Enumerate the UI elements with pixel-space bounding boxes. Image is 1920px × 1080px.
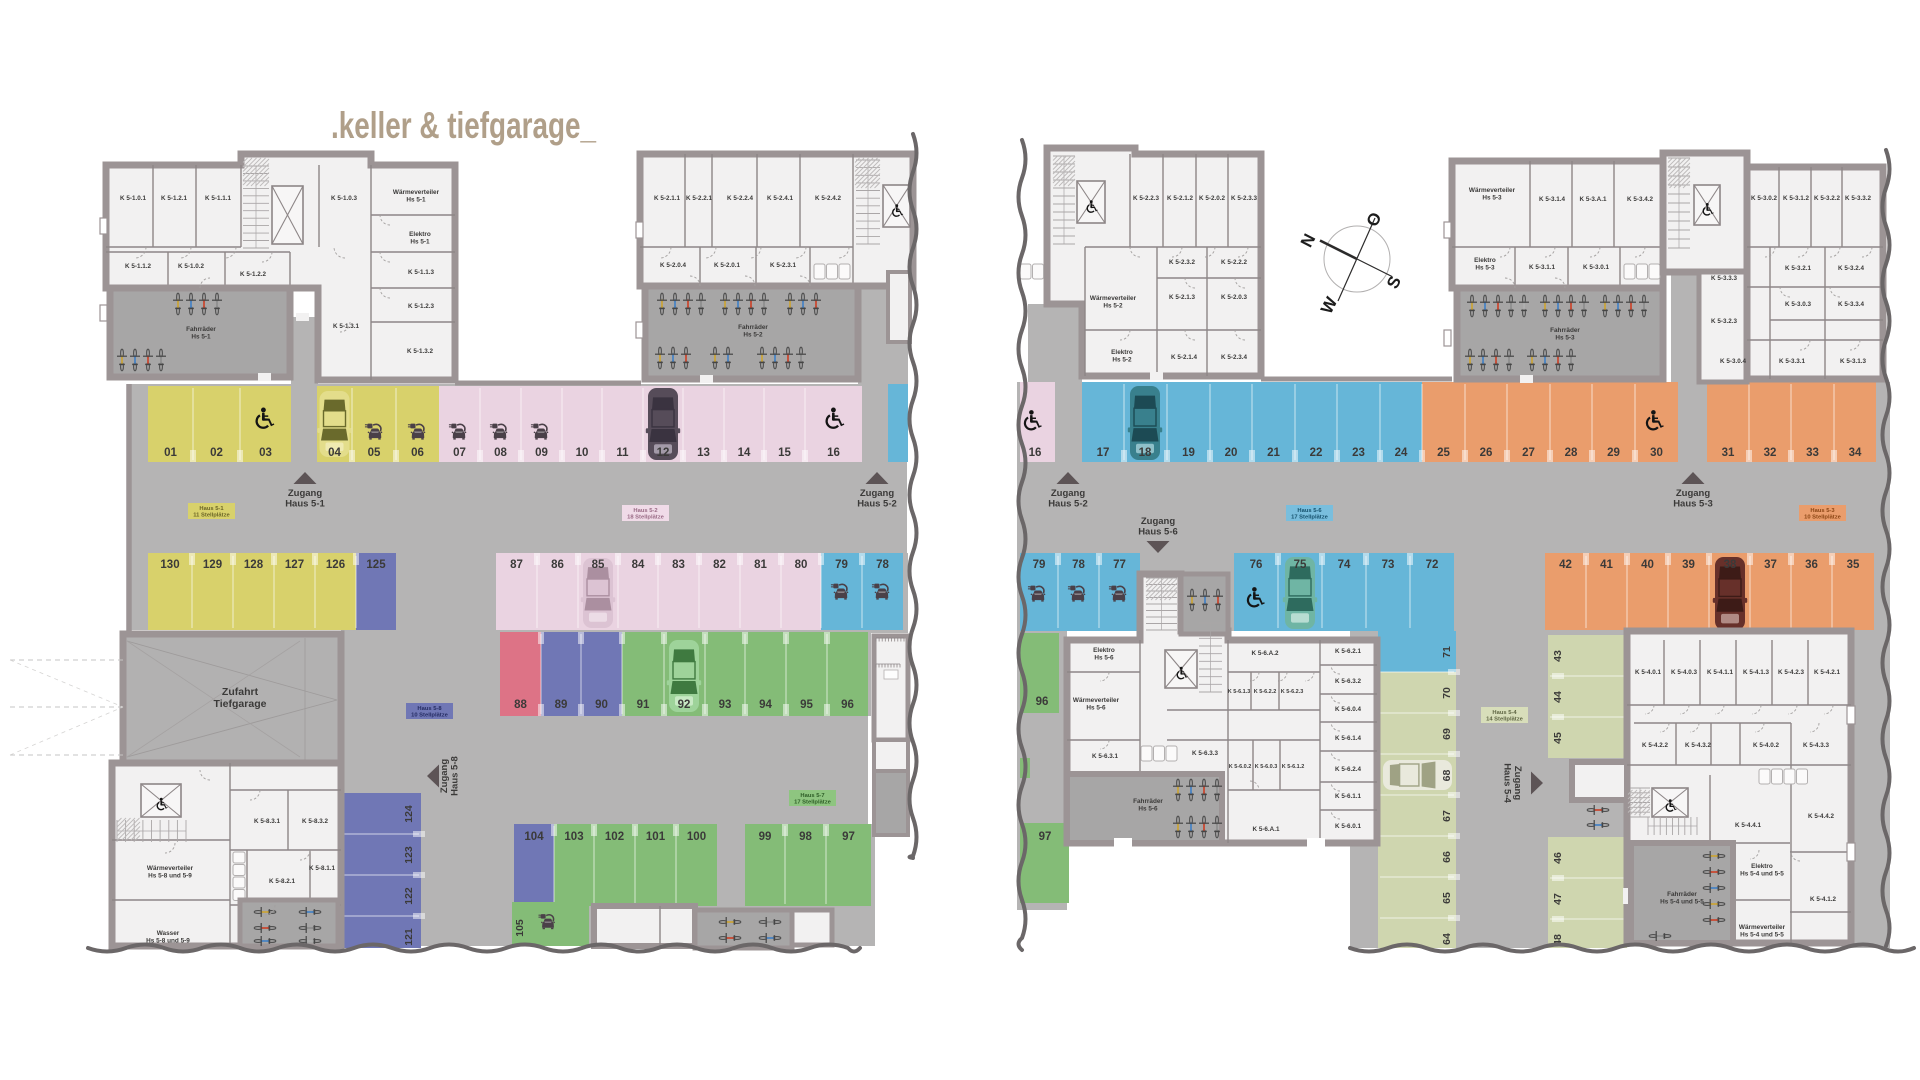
svg-text:11: 11 (616, 447, 629, 459)
svg-text:K 5-2.0.1: K 5-2.0.1 (714, 262, 740, 269)
svg-text:K 5-2.3.3: K 5-2.3.3 (1231, 195, 1257, 202)
svg-text:96: 96 (1036, 696, 1049, 708)
svg-text:ElektroHs 5-6: ElektroHs 5-6 (1093, 647, 1115, 662)
svg-text:K 5-8.2.1: K 5-8.2.1 (269, 878, 295, 885)
svg-text:104: 104 (524, 831, 544, 843)
svg-text:K 5-3.3.3: K 5-3.3.3 (1711, 275, 1737, 282)
svg-text:K 5-3.1.4: K 5-3.1.4 (1539, 196, 1565, 203)
svg-text:WärmeverteilerHs 5-4 und 5-5: WärmeverteilerHs 5-4 und 5-5 (1739, 924, 1786, 939)
svg-text:84: 84 (632, 559, 645, 571)
svg-text:92: 92 (678, 699, 691, 711)
svg-text:K 5-1.1.2: K 5-1.1.2 (125, 263, 151, 270)
svg-text:K 5-3.A.1: K 5-3.A.1 (1580, 196, 1607, 203)
svg-text:K 5-6.0.3: K 5-6.0.3 (1255, 764, 1278, 770)
svg-text:103: 103 (564, 831, 583, 843)
svg-text:K 5-6.0.2: K 5-6.0.2 (1229, 764, 1252, 770)
svg-text:90: 90 (595, 699, 608, 711)
svg-text:21: 21 (1267, 447, 1280, 459)
svg-text:ZugangHaus 5-1: ZugangHaus 5-1 (285, 488, 325, 510)
svg-text:16: 16 (1029, 447, 1042, 459)
svg-text:12: 12 (657, 447, 670, 459)
svg-text:75: 75 (1294, 559, 1307, 571)
svg-text:K 5-1.0.2: K 5-1.0.2 (178, 263, 204, 270)
svg-text:K 5-3.0.2: K 5-3.0.2 (1751, 195, 1777, 202)
svg-text:K 5-4.2.3: K 5-4.2.3 (1778, 669, 1804, 676)
svg-text:34: 34 (1849, 447, 1862, 459)
svg-text:67: 67 (1441, 810, 1453, 822)
svg-text:88: 88 (514, 699, 527, 711)
svg-text:K 5-3.2.1: K 5-3.2.1 (1785, 265, 1811, 272)
svg-text:K 5-3.2.2: K 5-3.2.2 (1814, 195, 1840, 202)
svg-text:K 5-2.3.2: K 5-2.3.2 (1169, 259, 1195, 266)
svg-text:K 5-3.0.4: K 5-3.0.4 (1720, 358, 1746, 365)
svg-text:83: 83 (672, 559, 685, 571)
svg-text:K 5-8.1.1: K 5-8.1.1 (309, 865, 335, 872)
svg-text:K 5-4.1.2: K 5-4.1.2 (1810, 896, 1836, 903)
svg-text:K 5-2.1.1: K 5-2.1.1 (654, 195, 680, 202)
svg-text:09: 09 (535, 447, 548, 459)
svg-text:K 5-2.1.2: K 5-2.1.2 (1167, 195, 1193, 202)
svg-text:35: 35 (1847, 559, 1860, 571)
svg-text:K 5-2.3.4: K 5-2.3.4 (1221, 354, 1247, 361)
svg-text:99: 99 (759, 831, 772, 843)
svg-text:K 5-6.0.1: K 5-6.0.1 (1335, 823, 1361, 830)
svg-text:22: 22 (1310, 447, 1323, 459)
svg-text:73: 73 (1382, 559, 1395, 571)
svg-text:K 5-2.4.2: K 5-2.4.2 (815, 195, 841, 202)
svg-text:44: 44 (1552, 691, 1564, 703)
svg-text:10: 10 (576, 447, 589, 459)
svg-text:K 5-1.3.2: K 5-1.3.2 (407, 348, 433, 355)
svg-text:74: 74 (1338, 559, 1351, 571)
svg-text:27: 27 (1522, 447, 1535, 459)
svg-text:K 5-6.3.3: K 5-6.3.3 (1192, 750, 1218, 757)
svg-text:K 5-4.2.1: K 5-4.2.1 (1814, 669, 1840, 676)
svg-text:45: 45 (1552, 732, 1564, 744)
svg-text:101: 101 (646, 831, 666, 843)
svg-text:78: 78 (1072, 559, 1085, 571)
svg-text:38: 38 (1724, 559, 1737, 571)
svg-text:ElektroHs 5-1: ElektroHs 5-1 (409, 231, 431, 246)
svg-text:ElektroHs 5-2: ElektroHs 5-2 (1111, 349, 1133, 364)
svg-text:76: 76 (1250, 559, 1263, 571)
svg-text:37: 37 (1764, 559, 1777, 571)
svg-text:77: 77 (1113, 559, 1126, 571)
svg-text:K 5-6.2.1: K 5-6.2.1 (1335, 648, 1361, 655)
svg-text:47: 47 (1552, 893, 1564, 905)
svg-text:ZugangHaus 5-2: ZugangHaus 5-2 (857, 488, 897, 510)
svg-text:K 5-6.1.1: K 5-6.1.1 (1335, 793, 1361, 800)
svg-text:46: 46 (1552, 852, 1564, 864)
svg-text:81: 81 (754, 559, 767, 571)
svg-text:91: 91 (637, 699, 650, 711)
svg-text:K 5-4.3.2: K 5-4.3.2 (1685, 742, 1711, 749)
svg-text:29: 29 (1607, 447, 1620, 459)
svg-text:30: 30 (1650, 447, 1663, 459)
svg-text:K 5-3.1.3: K 5-3.1.3 (1840, 358, 1866, 365)
svg-text:28: 28 (1565, 447, 1578, 459)
svg-text:K 5-6.1.3: K 5-6.1.3 (1228, 689, 1251, 695)
svg-text:K 5-4.4.1: K 5-4.4.1 (1735, 822, 1761, 829)
svg-text:23: 23 (1352, 447, 1365, 459)
svg-text:79: 79 (835, 559, 848, 571)
svg-text:130: 130 (160, 559, 179, 571)
svg-text:36: 36 (1805, 559, 1818, 571)
svg-text:K 5-1.3.1: K 5-1.3.1 (333, 323, 359, 330)
svg-text:18: 18 (1139, 447, 1152, 459)
svg-text:02: 02 (210, 447, 223, 459)
svg-text:K 5-3.1.1: K 5-3.1.1 (1529, 264, 1555, 271)
svg-text:24: 24 (1395, 447, 1408, 459)
svg-text:98: 98 (799, 831, 812, 843)
svg-text:39: 39 (1682, 559, 1695, 571)
svg-text:K 5-1.2.2: K 5-1.2.2 (240, 271, 266, 278)
svg-text:K 5-4.3.3: K 5-4.3.3 (1803, 742, 1829, 749)
svg-text:122: 122 (403, 887, 415, 905)
svg-text:06: 06 (411, 447, 424, 459)
svg-text:K 5-6.3.1: K 5-6.3.1 (1092, 753, 1118, 760)
svg-text:43: 43 (1552, 650, 1564, 662)
svg-text:K 5-1.1.1: K 5-1.1.1 (205, 195, 231, 202)
svg-text:K 5-6.1.2: K 5-6.1.2 (1282, 764, 1305, 770)
svg-text:K 5-2.2.4: K 5-2.2.4 (727, 195, 753, 202)
svg-text:40: 40 (1641, 559, 1654, 571)
svg-text:129: 129 (203, 559, 222, 571)
svg-text:102: 102 (605, 831, 624, 843)
svg-text:25: 25 (1437, 447, 1450, 459)
svg-text:ZugangHaus 5-6: ZugangHaus 5-6 (1138, 516, 1178, 538)
svg-text:66: 66 (1441, 851, 1453, 863)
svg-text:K 5-3.0.3: K 5-3.0.3 (1785, 301, 1811, 308)
svg-text:80: 80 (795, 559, 808, 571)
svg-text:K 5-1.0.1: K 5-1.0.1 (120, 195, 146, 202)
svg-text:ZugangHaus 5-8: ZugangHaus 5-8 (439, 756, 461, 796)
svg-text:19: 19 (1182, 447, 1195, 459)
svg-text:20: 20 (1225, 447, 1238, 459)
svg-text:K 5-4.1.1: K 5-4.1.1 (1707, 669, 1733, 676)
svg-text:K 5-4.4.2: K 5-4.4.2 (1808, 813, 1834, 820)
svg-text:97: 97 (842, 831, 855, 843)
svg-text:85: 85 (592, 559, 605, 571)
svg-text:K 5-2.2.3: K 5-2.2.3 (1133, 195, 1159, 202)
svg-text:K 5-3.3.1: K 5-3.3.1 (1779, 358, 1805, 365)
svg-text:79: 79 (1033, 559, 1046, 571)
svg-text:K 5-2.4.1: K 5-2.4.1 (767, 195, 793, 202)
svg-text:ZugangHaus 5-4: ZugangHaus 5-4 (1502, 763, 1524, 803)
svg-text:97: 97 (1039, 831, 1052, 843)
svg-text:K 5-3.2.3: K 5-3.2.3 (1711, 318, 1737, 325)
svg-text:K 5-3.3.2: K 5-3.3.2 (1845, 195, 1871, 202)
svg-text:K 5-3.2.4: K 5-3.2.4 (1838, 265, 1864, 272)
svg-text:K 5-8.3.1: K 5-8.3.1 (254, 818, 280, 825)
svg-text:16: 16 (827, 447, 840, 459)
svg-text:K 5-4.0.3: K 5-4.0.3 (1671, 669, 1697, 676)
svg-text:K 5-6.2.4: K 5-6.2.4 (1335, 766, 1361, 773)
svg-text:78: 78 (876, 559, 889, 571)
svg-text:08: 08 (494, 447, 507, 459)
svg-text:K 5-6.A.1: K 5-6.A.1 (1253, 826, 1280, 833)
svg-text:K 5-4.0.2: K 5-4.0.2 (1753, 742, 1779, 749)
svg-text:ElektroHs 5-3: ElektroHs 5-3 (1474, 257, 1496, 272)
svg-text:127: 127 (285, 559, 304, 571)
svg-text:K 5-2.1.3: K 5-2.1.3 (1169, 294, 1195, 301)
svg-text:K 5-6.A.2: K 5-6.A.2 (1252, 650, 1279, 657)
svg-text:ZugangHaus 5-3: ZugangHaus 5-3 (1673, 488, 1713, 510)
svg-text:14: 14 (738, 447, 751, 459)
svg-text:124: 124 (403, 805, 415, 823)
svg-text:33: 33 (1806, 447, 1819, 459)
svg-text:K 5-4.2.2: K 5-4.2.2 (1642, 742, 1668, 749)
svg-text:89: 89 (555, 699, 568, 711)
svg-text:26: 26 (1480, 447, 1493, 459)
svg-text:86: 86 (551, 559, 564, 571)
svg-text:17: 17 (1097, 447, 1110, 459)
svg-text:K 5-2.2.1: K 5-2.2.1 (686, 195, 712, 202)
svg-text:03: 03 (259, 447, 272, 459)
svg-text:K 5-3.1.2: K 5-3.1.2 (1783, 195, 1809, 202)
svg-text:41: 41 (1600, 559, 1613, 571)
svg-text:71: 71 (1441, 646, 1453, 658)
svg-text:126: 126 (326, 559, 345, 571)
svg-text:15: 15 (778, 447, 791, 459)
svg-text:K 5-1.2.3: K 5-1.2.3 (408, 303, 434, 310)
svg-text:95: 95 (800, 699, 813, 711)
svg-text:K 5-3.0.1: K 5-3.0.1 (1583, 264, 1609, 271)
svg-text:31: 31 (1722, 447, 1735, 459)
svg-text:100: 100 (687, 831, 706, 843)
svg-text:K 5-2.1.4: K 5-2.1.4 (1171, 354, 1197, 361)
svg-text:WärmeverteilerHs 5-8 und 5-9: WärmeverteilerHs 5-8 und 5-9 (147, 865, 194, 880)
svg-text:K 5-4.1.3: K 5-4.1.3 (1743, 669, 1769, 676)
svg-text:K 5-2.0.3: K 5-2.0.3 (1221, 294, 1247, 301)
svg-text:ZugangHaus 5-2: ZugangHaus 5-2 (1048, 488, 1088, 510)
svg-text:K 5-8.3.2: K 5-8.3.2 (302, 818, 328, 825)
svg-text:69: 69 (1441, 728, 1453, 740)
svg-text:K 5-4.0.1: K 5-4.0.1 (1635, 669, 1661, 676)
svg-text:96: 96 (841, 699, 854, 711)
svg-text:K 5-2.3.1: K 5-2.3.1 (770, 262, 796, 269)
svg-text:121: 121 (403, 928, 415, 946)
svg-text:K 5-2.2.2: K 5-2.2.2 (1221, 259, 1247, 266)
svg-text:68: 68 (1441, 770, 1453, 782)
svg-text:K 5-1.1.3: K 5-1.1.3 (408, 269, 434, 276)
svg-text:K 5-6.3.2: K 5-6.3.2 (1335, 678, 1361, 685)
svg-text:01: 01 (164, 447, 177, 459)
svg-text:04: 04 (328, 447, 341, 459)
svg-text:K 5-6.2.3: K 5-6.2.3 (1281, 689, 1304, 695)
svg-text:128: 128 (244, 559, 264, 571)
svg-text:K 5-1.0.3: K 5-1.0.3 (331, 195, 357, 202)
svg-text:K 5-3.4.2: K 5-3.4.2 (1627, 196, 1653, 203)
svg-text:42: 42 (1559, 559, 1572, 571)
svg-text:K 5-2.0.2: K 5-2.0.2 (1199, 195, 1225, 202)
svg-text:94: 94 (759, 699, 772, 711)
svg-text:82: 82 (713, 559, 726, 571)
svg-text:13: 13 (697, 447, 710, 459)
svg-text:32: 32 (1764, 447, 1777, 459)
svg-text:93: 93 (719, 699, 732, 711)
svg-text:K 5-1.2.1: K 5-1.2.1 (161, 195, 187, 202)
svg-text:87: 87 (510, 559, 523, 571)
svg-text:K 5-6.1.4: K 5-6.1.4 (1335, 735, 1361, 742)
svg-text:105: 105 (514, 919, 526, 937)
svg-text:64: 64 (1441, 933, 1453, 945)
svg-text:65: 65 (1441, 892, 1453, 904)
svg-text:05: 05 (368, 447, 381, 459)
svg-text:123: 123 (403, 846, 415, 864)
svg-text:72: 72 (1426, 559, 1439, 571)
svg-text:K 5-2.0.4: K 5-2.0.4 (660, 262, 686, 269)
svg-text:K 5-3.3.4: K 5-3.3.4 (1838, 301, 1864, 308)
svg-text:.keller & tiefgarage_: .keller & tiefgarage_ (331, 105, 596, 146)
svg-text:K 5-6.0.4: K 5-6.0.4 (1335, 706, 1361, 713)
svg-text:125: 125 (366, 559, 386, 571)
svg-text:K 5-6.2.2: K 5-6.2.2 (1254, 689, 1277, 695)
svg-text:70: 70 (1441, 687, 1453, 699)
svg-text:07: 07 (453, 447, 466, 459)
